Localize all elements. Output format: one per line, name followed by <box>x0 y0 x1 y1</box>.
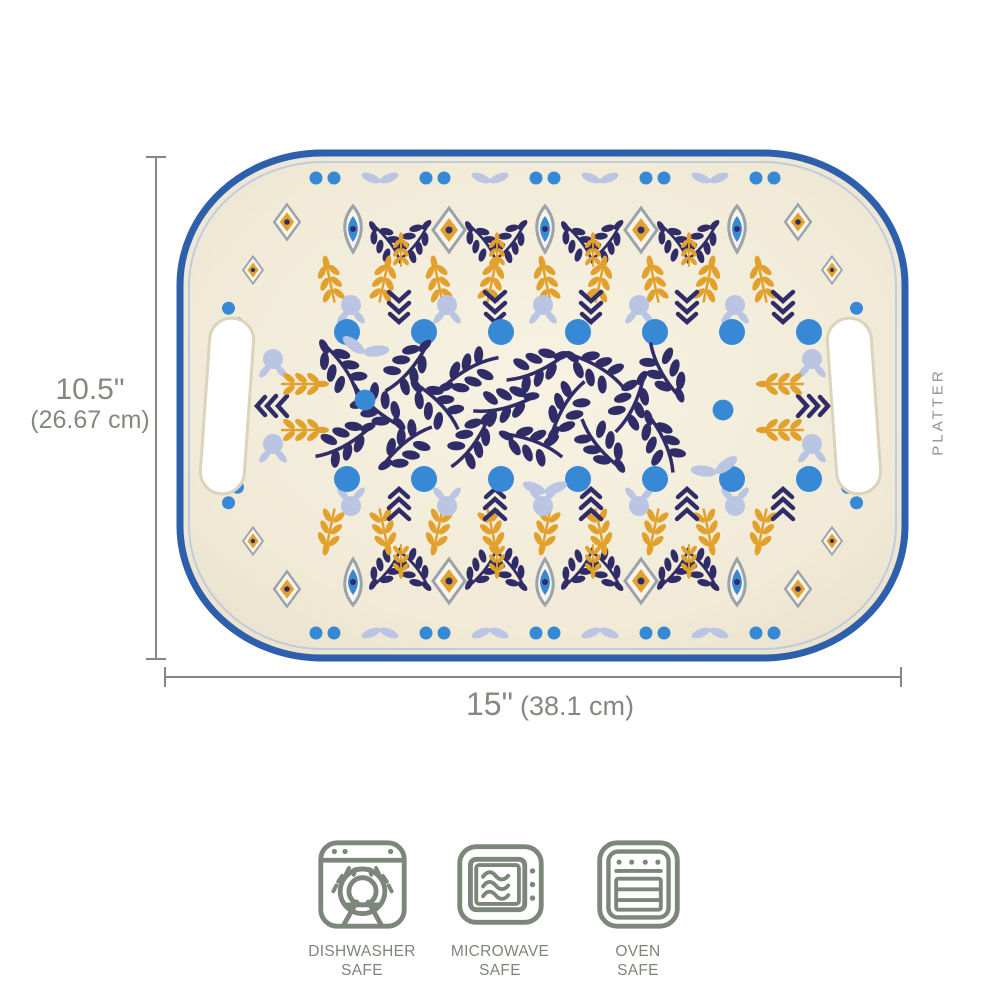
microwave-safe-label: MICROWAVE SAFE <box>451 942 549 980</box>
badge-oven-safe: OVEN SAFE <box>569 836 707 980</box>
oven-safe-label: OVEN SAFE <box>615 942 660 980</box>
height-dimension-label: 10.5" (26.67 cm) <box>20 374 160 434</box>
width-dimension-line <box>165 676 901 678</box>
dishwasher-icon <box>314 836 411 933</box>
microwave-icon <box>452 836 549 933</box>
product-dimension-diagram: 10.5" (26.67 cm) 15"(38.1 cm) PLATTER <box>0 0 1000 1000</box>
oven-icon <box>590 836 687 933</box>
width-dimension-label: 15"(38.1 cm) <box>380 686 720 723</box>
width-dimension-tick-left <box>164 667 166 687</box>
width-cm-text: (38.1 cm) <box>520 691 634 721</box>
platter-image <box>175 148 910 663</box>
badge-dishwasher-safe: DISHWASHER SAFE <box>293 836 431 980</box>
width-dimension-tick-right <box>900 667 902 687</box>
height-inches-text: 10.5" <box>20 374 160 406</box>
height-cm-text: (26.67 cm) <box>20 406 160 434</box>
platter-side-label: PLATTER <box>930 368 947 455</box>
height-dimension-tick-bottom <box>146 658 166 660</box>
width-inches-text: 15" <box>466 686 513 722</box>
platter-svg <box>175 148 910 663</box>
dishwasher-safe-label: DISHWASHER SAFE <box>308 942 416 980</box>
care-badges-row: DISHWASHER SAFE MICROWAVE SAFE <box>0 836 1000 980</box>
badge-microwave-safe: MICROWAVE SAFE <box>431 836 569 980</box>
height-dimension-tick-top <box>146 156 166 158</box>
